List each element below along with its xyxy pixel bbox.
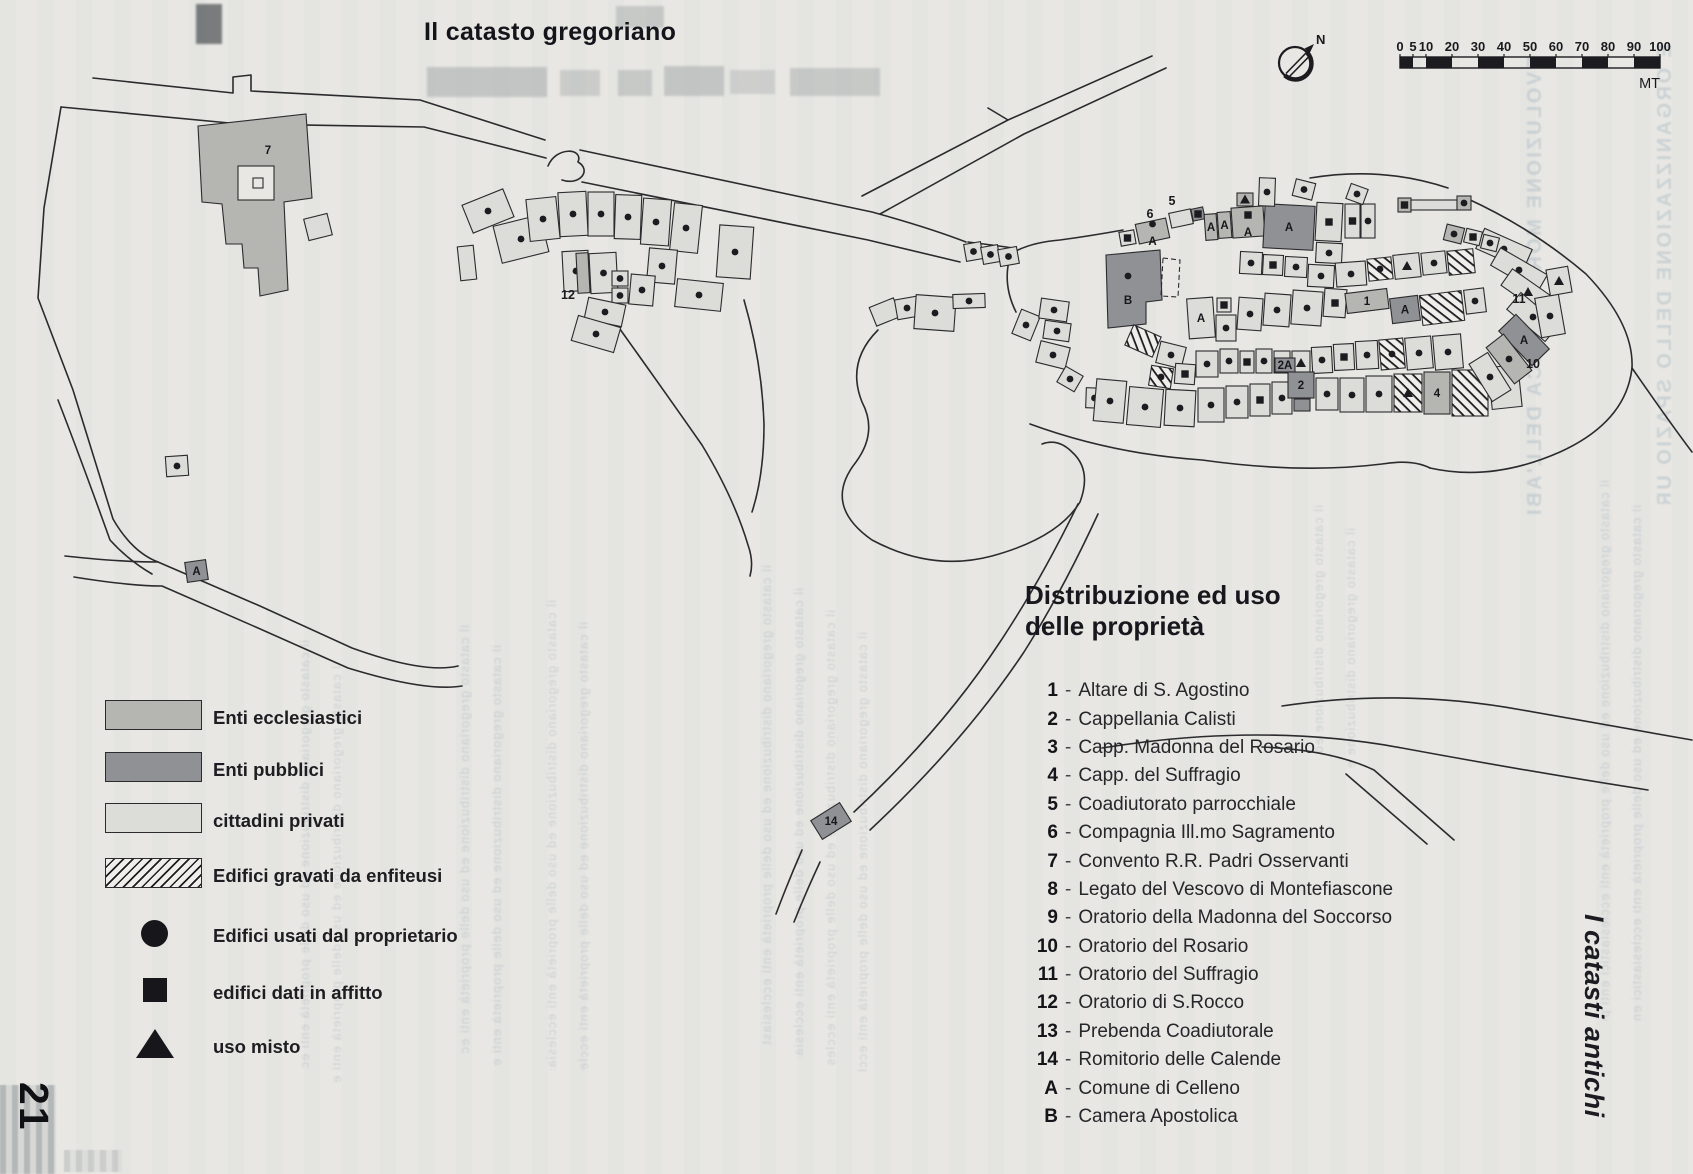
property-name: Capp. Madonna del Rosario (1078, 737, 1315, 759)
north-label: N (1316, 32, 1325, 47)
property-name: Camera Apostolica (1078, 1106, 1237, 1128)
property-name: Capp. del Suffragio (1078, 765, 1240, 787)
legend-swatch-sq (143, 978, 167, 1002)
separator: - (1065, 992, 1071, 1014)
property-key: 7 (1028, 851, 1058, 873)
scale-tick-label: 20 (1445, 39, 1459, 54)
scanned-book-page: EVOLUZIONE MORFOLOGICA DELL'ABITATO E OR… (0, 0, 1693, 1174)
separator: - (1065, 1106, 1071, 1128)
heading-line-1: Distribuzione ed uso (1025, 580, 1281, 611)
legend-swatch-priv (105, 803, 202, 833)
property-key: 8 (1028, 879, 1058, 901)
property-name: Romitorio delle Calende (1078, 1049, 1281, 1071)
property-list-item: 1-Altare di S. Agostino (1028, 677, 1488, 705)
legend-label: Edifici gravati da enfiteusi (213, 865, 442, 887)
property-list-item: 11-Oratorio del Suffragio (1028, 961, 1488, 989)
legend-label: uso misto (213, 1036, 300, 1058)
separator: - (1065, 794, 1071, 816)
property-name: Oratorio di S.Rocco (1078, 992, 1244, 1014)
heading-line-2: delle proprietà (1025, 611, 1281, 642)
property-key: 13 (1028, 1021, 1058, 1043)
property-list: 1-Altare di S. Agostino2-Cappellania Cal… (1028, 677, 1488, 1131)
property-list-item: 5-Coadiutorato parrocchiale (1028, 791, 1488, 819)
property-name: Cappellania Calisti (1078, 709, 1235, 731)
separator: - (1065, 822, 1071, 844)
property-name: Oratorio del Rosario (1078, 936, 1248, 958)
legend-swatch-eccl (105, 700, 202, 730)
property-list-item: B-Camera Apostolica (1028, 1103, 1488, 1131)
property-key: 1 (1028, 680, 1058, 702)
scale-tick-label: 70 (1575, 39, 1589, 54)
separator: - (1065, 964, 1071, 986)
property-key: 2 (1028, 709, 1058, 731)
property-list-heading: Distribuzione ed uso delle proprietà (1025, 580, 1281, 642)
property-list-item: 12-Oratorio di S.Rocco (1028, 989, 1488, 1017)
property-name: Comune di Celleno (1078, 1078, 1240, 1100)
separator: - (1065, 709, 1071, 731)
legend-swatch-enf (105, 858, 202, 888)
separator: - (1065, 680, 1071, 702)
property-key: 6 (1028, 822, 1058, 844)
scale-tick-label: 40 (1497, 39, 1511, 54)
property-key: 14 (1028, 1049, 1058, 1071)
property-key: 11 (1028, 964, 1058, 986)
property-list-item: 6-Compagnia Ill.mo Sagramento (1028, 819, 1488, 847)
scale-unit-label: MT (1639, 76, 1660, 92)
property-list-item: 10-Oratorio del Rosario (1028, 933, 1488, 961)
property-list-item: 4-Capp. del Suffragio (1028, 762, 1488, 790)
property-name: Oratorio della Madonna del Soccorso (1078, 907, 1392, 929)
property-key: B (1028, 1106, 1058, 1128)
scale-tick-label: 30 (1471, 39, 1485, 54)
property-key: 3 (1028, 737, 1058, 759)
property-name: Altare di S. Agostino (1078, 680, 1249, 702)
scale-tick-label: 0 (1396, 39, 1403, 54)
property-key: 4 (1028, 765, 1058, 787)
property-list-item: 13-Prebenda Coadiutorale (1028, 1018, 1488, 1046)
separator: - (1065, 737, 1071, 759)
property-key: 10 (1028, 936, 1058, 958)
separator: - (1065, 1049, 1071, 1071)
scale-tick-label: 50 (1523, 39, 1537, 54)
property-name: Legato del Vescovo di Montefiascone (1078, 879, 1393, 901)
legend-swatch-dot (141, 920, 168, 947)
separator: - (1065, 765, 1071, 787)
north-arrow-icon: N (1279, 32, 1325, 79)
property-name: Compagnia Ill.mo Sagramento (1078, 822, 1335, 844)
property-list-item: 14-Romitorio delle Calende (1028, 1046, 1488, 1074)
legend-label: edifici dati in affitto (213, 982, 383, 1004)
property-name: Oratorio del Suffragio (1078, 964, 1258, 986)
page-number: 21 (10, 1082, 57, 1132)
property-list-item: 3-Capp. Madonna del Rosario (1028, 734, 1488, 762)
property-list-item: 9-Oratorio della Madonna del Soccorso (1028, 904, 1488, 932)
scale-tick-label: 5 (1409, 39, 1416, 54)
property-key: 12 (1028, 992, 1058, 1014)
separator: - (1065, 851, 1071, 873)
legend-swatch-tri (136, 1029, 174, 1058)
property-key: 5 (1028, 794, 1058, 816)
page-title: Il catasto gregoriano (424, 18, 676, 47)
property-name: Convento R.R. Padri Osservanti (1078, 851, 1348, 873)
scale-tick-label: 60 (1549, 39, 1563, 54)
separator: - (1065, 1078, 1071, 1100)
property-name: Coadiutorato parrocchiale (1078, 794, 1296, 816)
separator: - (1065, 879, 1071, 901)
scale-tick-label: 90 (1627, 39, 1641, 54)
property-list-item: 2-Cappellania Calisti (1028, 705, 1488, 733)
legend-label: Enti pubblici (213, 759, 324, 781)
scale-bar: 05102030405060708090100MT (1396, 39, 1670, 92)
property-list-item: A-Comune di Celleno (1028, 1074, 1488, 1102)
legend-swatch-pub (105, 752, 202, 782)
property-list-item: 8-Legato del Vescovo di Montefiascone (1028, 876, 1488, 904)
legend-label: Edifici usati dal proprietario (213, 925, 458, 947)
scale-tick-label: 80 (1601, 39, 1615, 54)
scale-tick-label: 10 (1419, 39, 1433, 54)
legend-label: Enti ecclesiastici (213, 707, 362, 729)
legend-label: cittadini privati (213, 810, 345, 832)
property-key: 9 (1028, 907, 1058, 929)
chapter-side-caption: I catasti antichi (1578, 914, 1609, 1118)
scale-tick-label: 100 (1649, 39, 1671, 54)
property-key: A (1028, 1078, 1058, 1100)
property-list-item: 7-Convento R.R. Padri Osservanti (1028, 847, 1488, 875)
separator: - (1065, 1021, 1071, 1043)
separator: - (1065, 907, 1071, 929)
separator: - (1065, 936, 1071, 958)
property-name: Prebenda Coadiutorale (1078, 1021, 1273, 1043)
